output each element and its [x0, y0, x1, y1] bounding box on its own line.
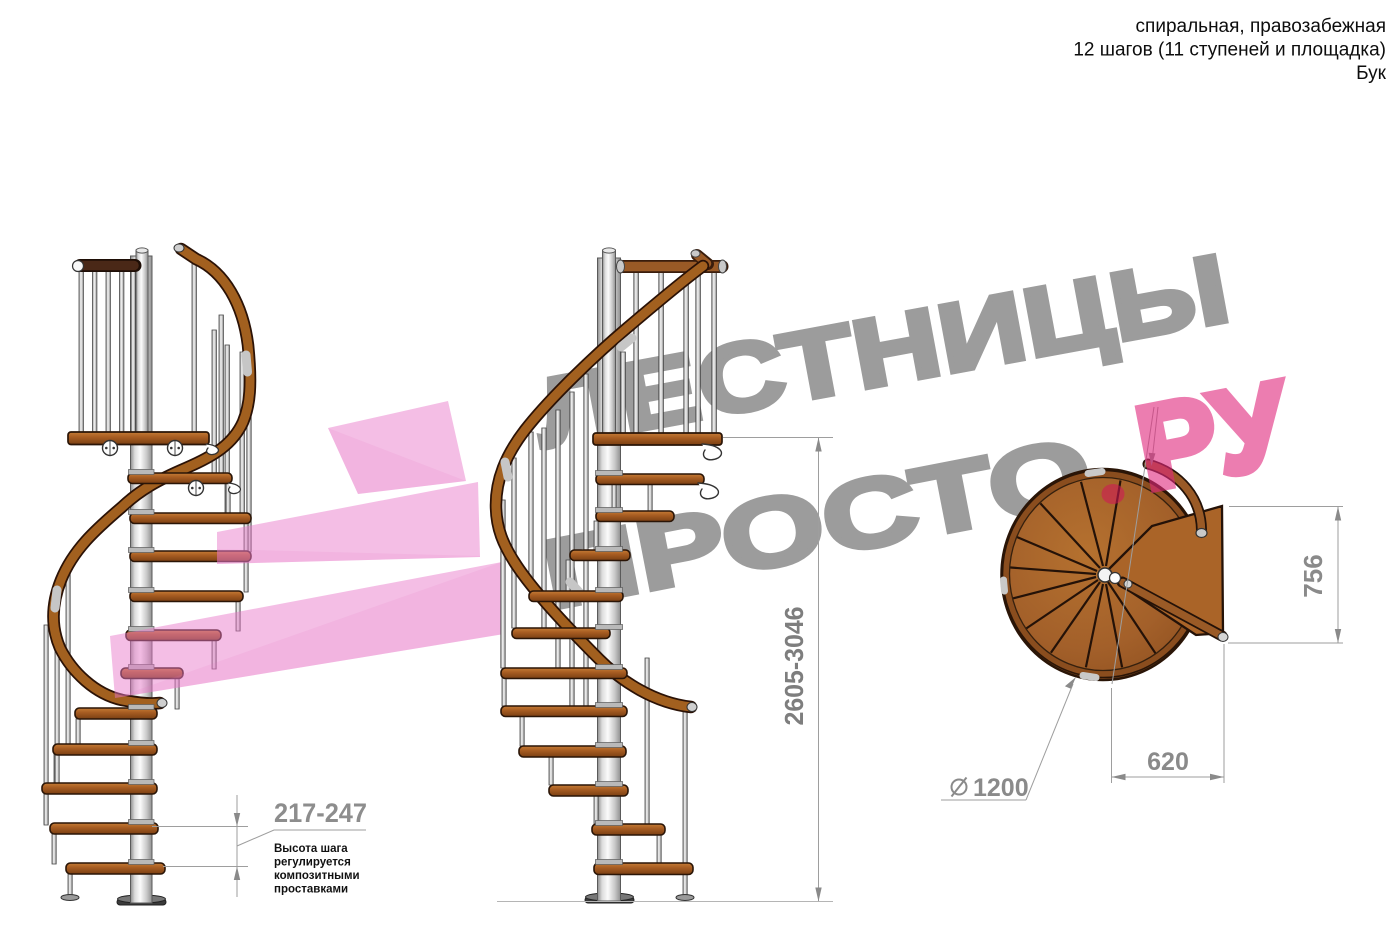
svg-text:композитными: композитными	[274, 870, 360, 882]
svg-text:12 шагов (11 ступеней и площад: 12 шагов (11 ступеней и площадка)	[1073, 40, 1386, 61]
svg-text:217-247: 217-247	[274, 798, 367, 828]
svg-text:проставками: проставками	[274, 884, 348, 896]
svg-text:1200: 1200	[973, 774, 1029, 802]
svg-text:756: 756	[1298, 554, 1328, 597]
svg-text:Высота шага: Высота шага	[274, 843, 348, 855]
svg-text:2605-3046: 2605-3046	[779, 607, 809, 726]
svg-text:спиральная, правозабежная: спиральная, правозабежная	[1136, 16, 1386, 37]
svg-text:620: 620	[1147, 748, 1189, 776]
svg-text:Бук: Бук	[1356, 63, 1387, 84]
svg-text:регулируется: регулируется	[274, 857, 351, 869]
